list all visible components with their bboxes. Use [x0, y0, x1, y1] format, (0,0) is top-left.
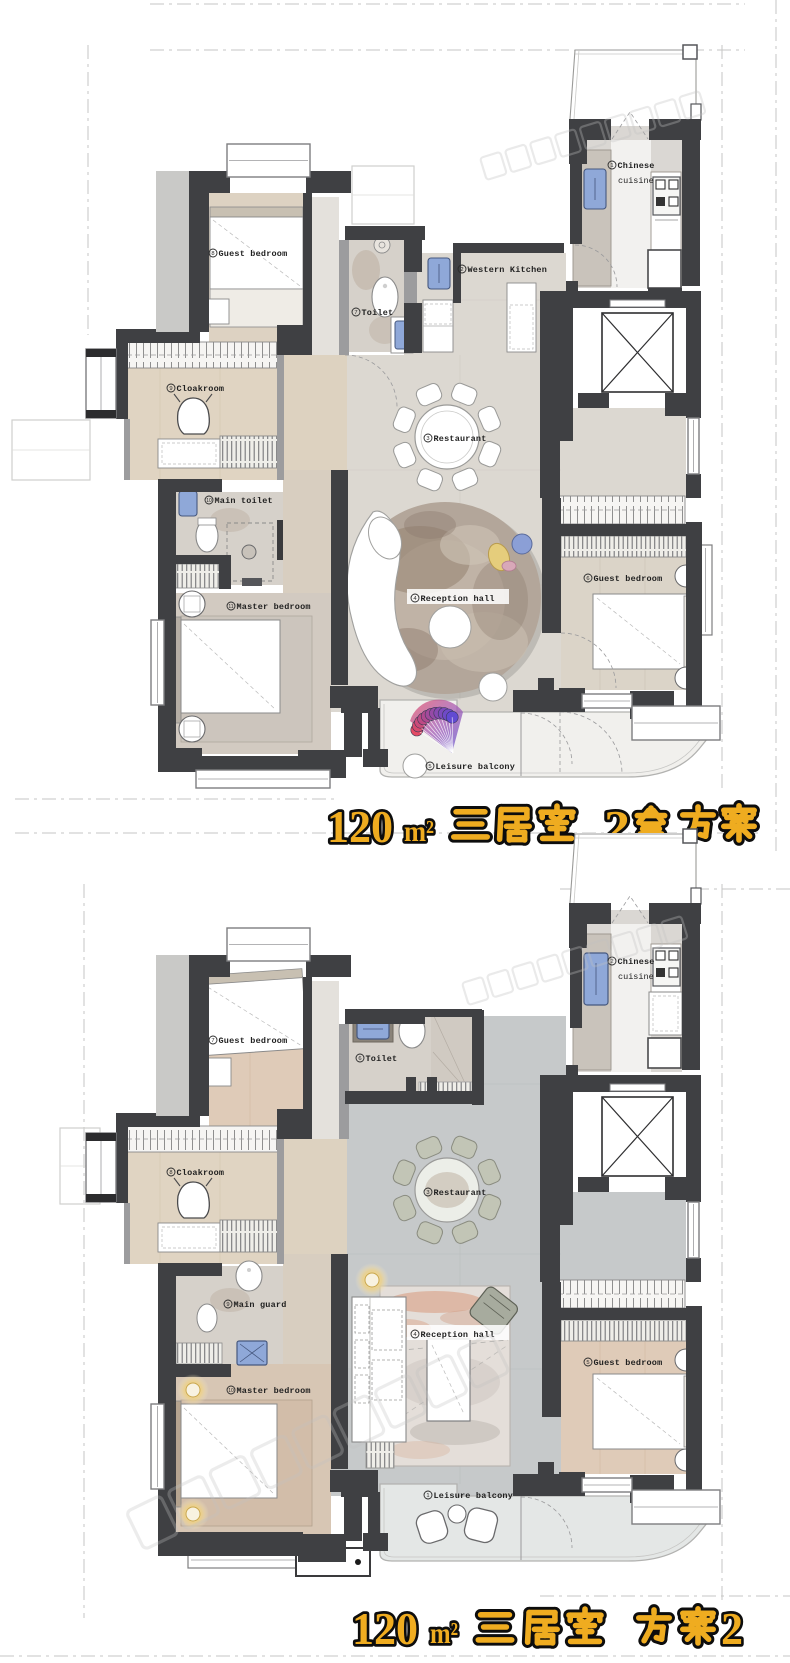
- svg-text:Guest bedroom: Guest bedroom: [594, 574, 663, 584]
- svg-text:120: 120: [352, 1603, 418, 1654]
- svg-text:2: 2: [721, 1603, 743, 1654]
- svg-text:7: 7: [354, 310, 357, 316]
- svg-text:120: 120: [327, 801, 393, 852]
- svg-text:cuisine: cuisine: [618, 176, 654, 186]
- svg-text:m²: m²: [404, 815, 434, 848]
- svg-text:Master bedroom: Master bedroom: [237, 1386, 311, 1396]
- svg-text:Western Kitchen: Western Kitchen: [468, 265, 548, 275]
- svg-text:6: 6: [586, 576, 589, 582]
- svg-text:7: 7: [211, 1038, 214, 1044]
- svg-text:Restaurant: Restaurant: [434, 434, 487, 444]
- svg-text:Leisure balcony: Leisure balcony: [434, 1491, 514, 1501]
- svg-text:10: 10: [228, 1388, 234, 1394]
- svg-text:Guest bedroom: Guest bedroom: [219, 1036, 288, 1046]
- svg-text:5: 5: [428, 764, 431, 770]
- svg-text:Chinese: Chinese: [618, 161, 655, 171]
- svg-text:cuisine: cuisine: [618, 972, 654, 982]
- svg-text:1: 1: [426, 1493, 429, 1499]
- svg-text:1: 1: [610, 163, 613, 169]
- svg-text:Guest bedroom: Guest bedroom: [594, 1358, 663, 1368]
- svg-text:11: 11: [228, 604, 233, 610]
- svg-text:Guest bedroom: Guest bedroom: [219, 249, 288, 259]
- svg-text:Leisure balcony: Leisure balcony: [436, 762, 516, 772]
- svg-text:Toilet: Toilet: [366, 1054, 398, 1064]
- svg-text:5: 5: [586, 1360, 589, 1366]
- svg-text:Main guard: Main guard: [234, 1300, 287, 1310]
- svg-text:Main toilet: Main toilet: [215, 496, 273, 506]
- svg-text:6: 6: [358, 1056, 361, 1062]
- svg-text:Cloakroom: Cloakroom: [177, 1168, 225, 1178]
- svg-text:Master bedroom: Master bedroom: [237, 602, 311, 612]
- svg-text:2: 2: [460, 267, 463, 273]
- svg-text:Cloakroom: Cloakroom: [177, 384, 225, 394]
- svg-text:3: 3: [426, 1190, 429, 1196]
- svg-text:Toilet: Toilet: [362, 308, 394, 318]
- svg-text:Restaurant: Restaurant: [434, 1188, 487, 1198]
- svg-text:3: 3: [426, 436, 429, 442]
- svg-text:m²: m²: [430, 1617, 458, 1650]
- svg-text:10: 10: [206, 498, 212, 504]
- svg-text:8: 8: [211, 251, 214, 257]
- svg-text:Reception hall: Reception hall: [421, 594, 495, 604]
- svg-text:9: 9: [169, 386, 172, 392]
- svg-text:9: 9: [226, 1302, 229, 1308]
- svg-text:8: 8: [169, 1170, 172, 1176]
